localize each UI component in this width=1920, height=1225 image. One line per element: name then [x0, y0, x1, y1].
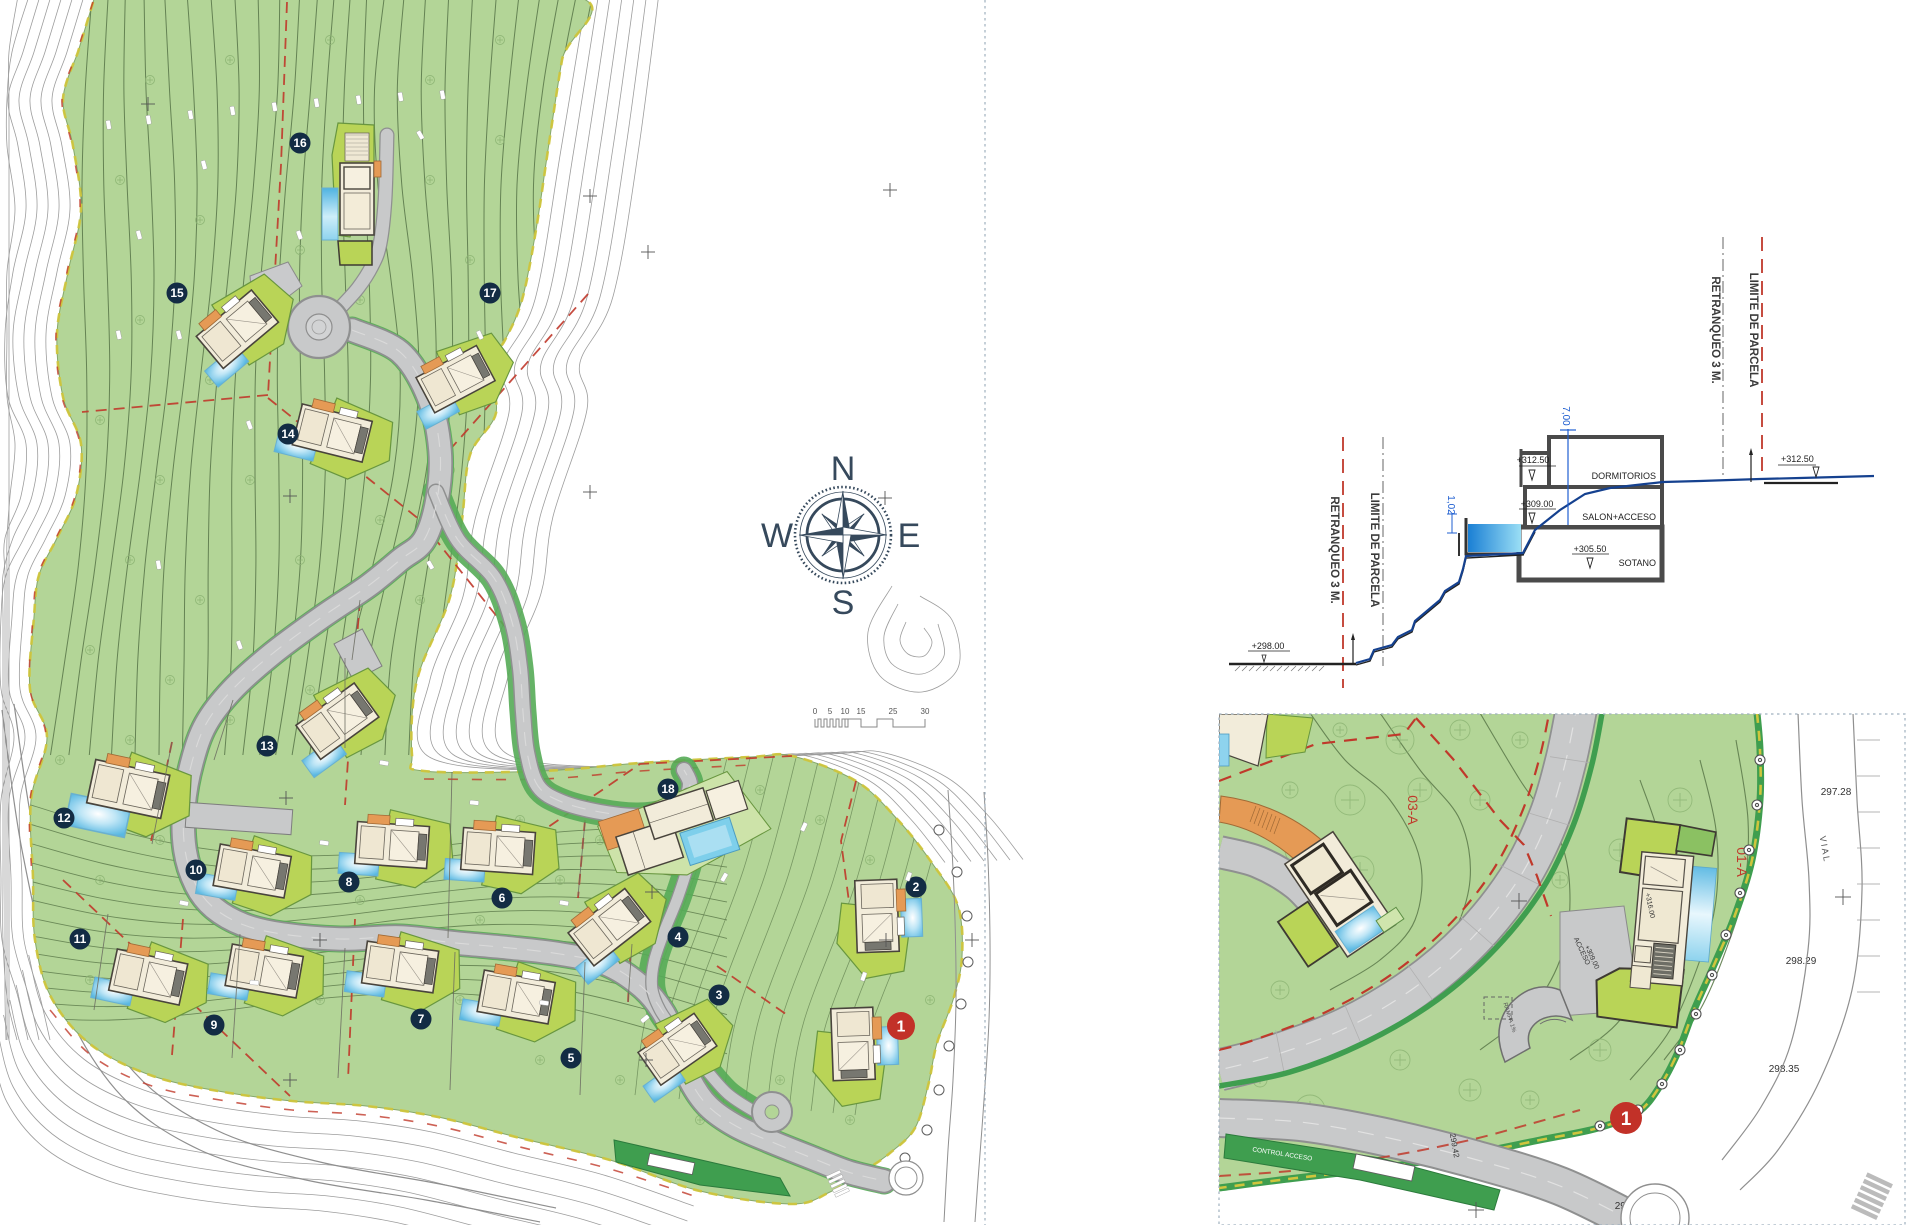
svg-text:25: 25 — [889, 707, 898, 716]
svg-text:E: E — [898, 517, 921, 555]
svg-text:DORMITORIOS: DORMITORIOS — [1592, 471, 1656, 481]
svg-text:1,02: 1,02 — [1445, 495, 1456, 515]
svg-text:9: 9 — [211, 1018, 218, 1032]
svg-text:17: 17 — [483, 286, 497, 300]
svg-text:16: 16 — [293, 136, 307, 150]
svg-text:5: 5 — [828, 707, 833, 716]
svg-text:S: S — [832, 584, 855, 622]
svg-text:15: 15 — [857, 707, 866, 716]
svg-text:10: 10 — [189, 863, 203, 877]
svg-text:4: 4 — [675, 930, 682, 944]
svg-text:SALON+ACCESO: SALON+ACCESO — [1582, 512, 1656, 522]
svg-text:15: 15 — [170, 286, 184, 300]
svg-text:+312.50: +312.50 — [1517, 455, 1550, 465]
svg-text:1: 1 — [897, 1019, 906, 1036]
svg-text:12: 12 — [57, 811, 71, 825]
svg-text:6: 6 — [499, 891, 506, 905]
svg-text:7,00: 7,00 — [1560, 406, 1571, 426]
svg-text:11: 11 — [74, 932, 87, 946]
svg-text:13: 13 — [260, 739, 274, 753]
svg-text:7: 7 — [418, 1012, 425, 1026]
svg-text:03-A: 03-A — [1405, 795, 1421, 825]
svg-text:14: 14 — [281, 427, 295, 441]
svg-text:+309.00: +309.00 — [1521, 499, 1554, 509]
svg-text:+305.50: +305.50 — [1574, 544, 1607, 554]
svg-text:0: 0 — [813, 707, 818, 716]
svg-text:W: W — [761, 517, 793, 555]
svg-text:30: 30 — [921, 707, 930, 716]
svg-text:8: 8 — [346, 875, 353, 889]
svg-text:1: 1 — [1621, 1109, 1632, 1130]
svg-text:SOTANO: SOTANO — [1619, 558, 1656, 568]
svg-text:N: N — [831, 450, 856, 488]
svg-text:3: 3 — [716, 988, 723, 1002]
svg-text:297.28: 297.28 — [1821, 787, 1852, 798]
svg-text:RETRANQUEO 3 M.: RETRANQUEO 3 M. — [1328, 496, 1340, 603]
svg-text:2: 2 — [913, 880, 920, 894]
svg-text:298.29: 298.29 — [1786, 956, 1817, 967]
svg-text:+298.00: +298.00 — [1252, 641, 1285, 651]
svg-text:18: 18 — [661, 782, 675, 796]
svg-text:5: 5 — [568, 1051, 575, 1065]
svg-text:RETRANQUEO 3 M.: RETRANQUEO 3 M. — [1709, 276, 1721, 383]
svg-text:LIMITE DE PARCELA: LIMITE DE PARCELA — [1747, 273, 1759, 388]
svg-text:LIMITE DE PARCELA: LIMITE DE PARCELA — [1368, 493, 1380, 608]
svg-text:10: 10 — [841, 707, 850, 716]
svg-text:+312.50: +312.50 — [1781, 454, 1814, 464]
svg-text:298.35: 298.35 — [1769, 1064, 1800, 1075]
